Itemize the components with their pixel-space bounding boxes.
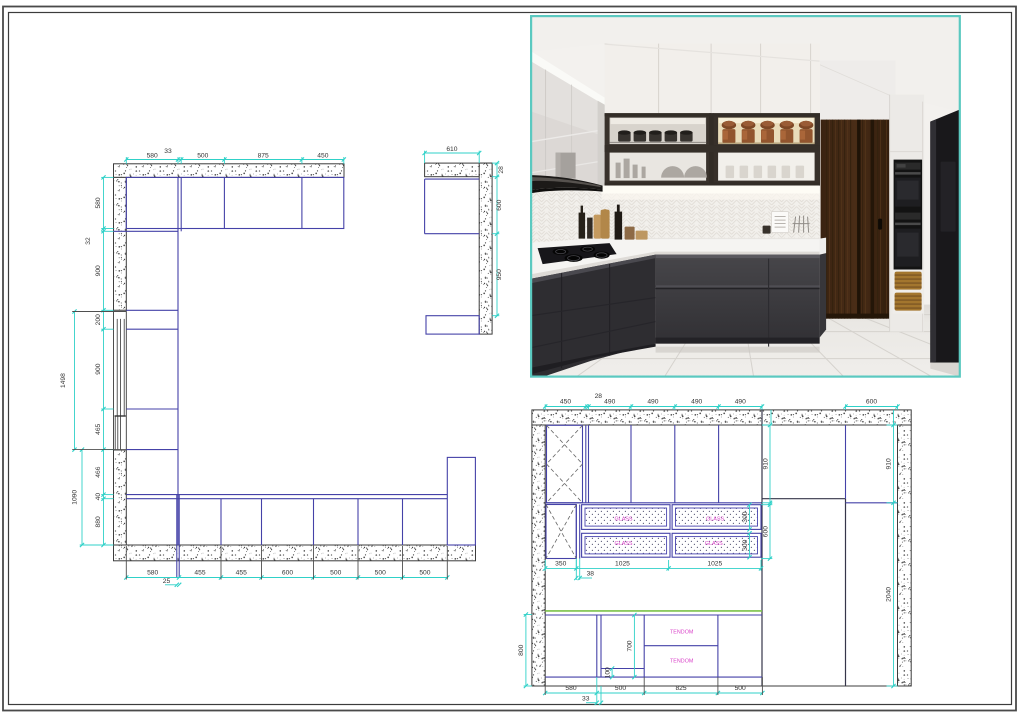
svg-text:100: 100	[604, 667, 611, 678]
svg-text:28: 28	[595, 393, 603, 400]
svg-text:490: 490	[735, 399, 746, 406]
svg-text:32: 32	[85, 237, 92, 245]
svg-text:25: 25	[163, 578, 171, 585]
svg-text:500: 500	[735, 685, 746, 692]
svg-text:500: 500	[375, 570, 386, 577]
svg-text:825: 825	[675, 685, 686, 692]
svg-text:33: 33	[164, 148, 172, 155]
svg-text:880: 880	[95, 516, 102, 527]
svg-text:1498: 1498	[60, 373, 67, 388]
svg-text:33: 33	[582, 696, 590, 703]
svg-text:GLASS: GLASS	[705, 541, 723, 547]
svg-text:700: 700	[627, 640, 634, 651]
svg-text:300: 300	[742, 539, 749, 550]
svg-text:600: 600	[762, 526, 769, 537]
svg-text:500: 500	[419, 570, 430, 577]
svg-text:300: 300	[742, 511, 749, 522]
svg-text:950: 950	[496, 269, 503, 280]
svg-text:490: 490	[647, 399, 658, 406]
svg-text:910: 910	[886, 458, 893, 469]
svg-text:455: 455	[194, 570, 205, 577]
svg-text:GLASS: GLASS	[615, 541, 633, 547]
svg-text:910: 910	[762, 458, 769, 469]
svg-text:500: 500	[197, 152, 208, 159]
svg-text:38: 38	[587, 571, 595, 578]
svg-text:GLASS: GLASS	[615, 517, 633, 523]
svg-text:600: 600	[282, 570, 293, 577]
svg-text:500: 500	[615, 685, 626, 692]
svg-text:1025: 1025	[615, 561, 630, 568]
svg-text:465: 465	[95, 423, 102, 434]
svg-text:800: 800	[518, 644, 525, 655]
svg-text:350: 350	[555, 561, 566, 568]
svg-text:610: 610	[446, 146, 457, 153]
svg-text:490: 490	[604, 399, 615, 406]
svg-text:875: 875	[258, 152, 269, 159]
svg-text:580: 580	[147, 152, 158, 159]
svg-text:450: 450	[317, 152, 328, 159]
svg-text:900: 900	[95, 363, 102, 374]
svg-text:600: 600	[866, 399, 877, 406]
svg-text:455: 455	[236, 570, 247, 577]
svg-text:TENDOM: TENDOM	[670, 659, 694, 665]
svg-text:580: 580	[565, 685, 576, 692]
svg-text:600: 600	[496, 199, 503, 210]
svg-text:466: 466	[95, 466, 102, 477]
svg-text:500: 500	[330, 570, 341, 577]
svg-text:1090: 1090	[72, 490, 79, 505]
svg-text:GLASS: GLASS	[706, 517, 724, 523]
svg-text:580: 580	[95, 197, 102, 208]
svg-text:2040: 2040	[886, 587, 893, 602]
svg-text:580: 580	[147, 570, 158, 577]
svg-text:40: 40	[95, 493, 102, 501]
svg-text:900: 900	[95, 265, 102, 276]
svg-text:200: 200	[95, 314, 102, 325]
svg-text:490: 490	[691, 399, 702, 406]
svg-text:1025: 1025	[707, 561, 722, 568]
svg-text:TENDOM: TENDOM	[670, 629, 694, 635]
svg-text:28: 28	[498, 166, 505, 174]
svg-text:450: 450	[560, 399, 571, 406]
